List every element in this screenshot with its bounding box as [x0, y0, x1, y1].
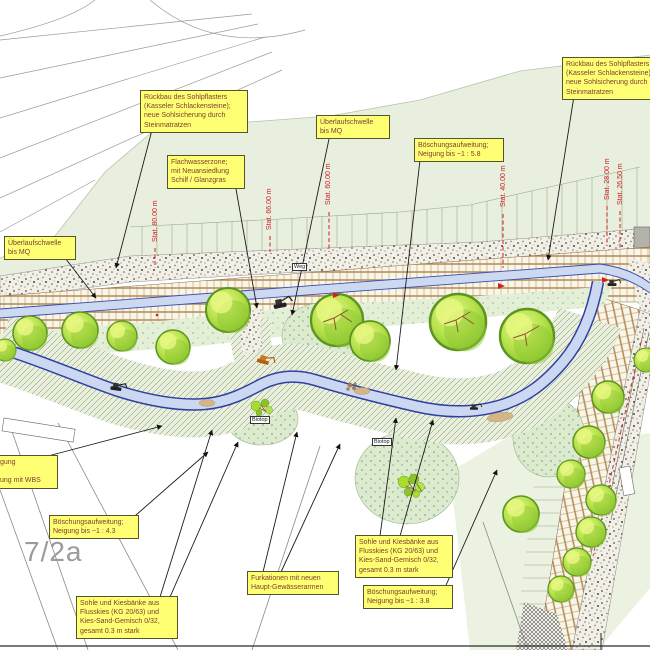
callout-wbs-clipped: gung ung mit WBS — [0, 455, 58, 489]
callout-flachwasserzone: Flachwasserzone; mit Neuansiedlung Schil… — [167, 155, 245, 189]
weg-label: Weg — [292, 263, 307, 271]
station-label-26-50: Stat. 26.50 m — [617, 163, 624, 205]
biotop-label: Biotop — [372, 438, 392, 446]
callout-rueckbau-links: Rückbau des Sohlpflasters (Kasseler Schl… — [140, 90, 248, 133]
callout-ueberlaufschwelle-oben: Überlaufschwelle bis MQ — [316, 115, 390, 139]
site-plan-drawing — [0, 0, 650, 650]
station-label-28: Stat. 28.00 m — [604, 158, 611, 200]
callout-boeschung-38: Böschungsaufweitung; Neigung bis ~1 : 3.… — [363, 585, 453, 609]
callout-rueckbau-rechts: Rückbau des Sohlpflasters (Kasseler Schl… — [562, 57, 650, 100]
parcel-number: 7/2a — [24, 536, 83, 568]
station-label-60: Stat. 60.00 m — [325, 163, 332, 205]
callout-ueberlaufschwelle-links: Überlaufschwelle bis MQ — [4, 236, 76, 260]
site-plan: Rückbau des Sohlpflasters (Kasseler Schl… — [0, 0, 650, 650]
callout-furkationen: Furkationen mit neuen Haupt-Gewässerarme… — [247, 571, 339, 595]
station-label-40: Stat. 40.00 m — [500, 165, 507, 207]
biotop-label: Biotop — [250, 416, 270, 424]
callout-sohle-links: Sohle und Kiesbänke aus Flusskies (KG 20… — [76, 596, 178, 639]
station-label-80: Stat. 80.00 m — [152, 200, 159, 242]
rotated-label-box — [2, 418, 75, 442]
callout-sohle-rechts: Sohle und Kiesbänke aus Flusskies (KG 20… — [355, 535, 453, 578]
callout-boeschung-58: Böschungsaufweitung; Neigung bis ~1 : 5.… — [414, 138, 504, 162]
callout-boeschung-43: Böschungsaufweitung; Neigung bis ~1 : 4.… — [49, 515, 139, 539]
station-label-66: Stat. 66.00 m — [266, 188, 273, 230]
